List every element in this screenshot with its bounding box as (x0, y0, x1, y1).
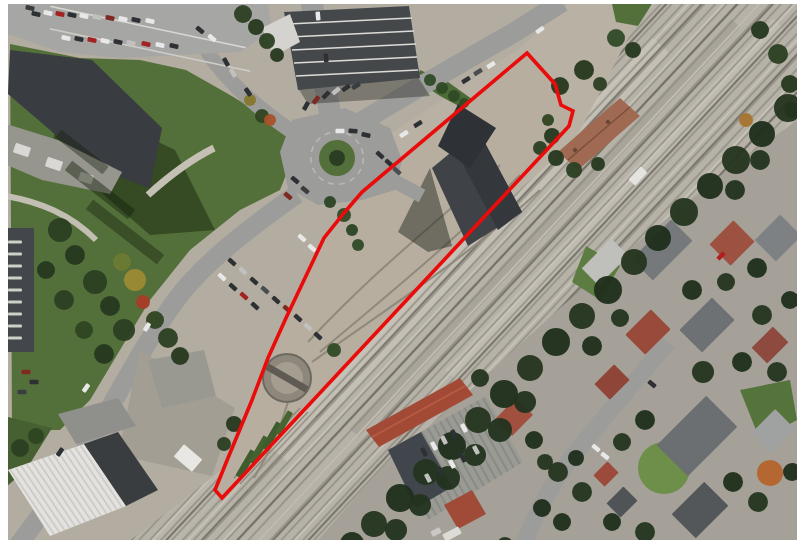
roundabout-bush (329, 150, 345, 166)
aerial-photo (0, 0, 800, 552)
turntable (263, 354, 311, 402)
aerial-photo-page (0, 0, 800, 552)
